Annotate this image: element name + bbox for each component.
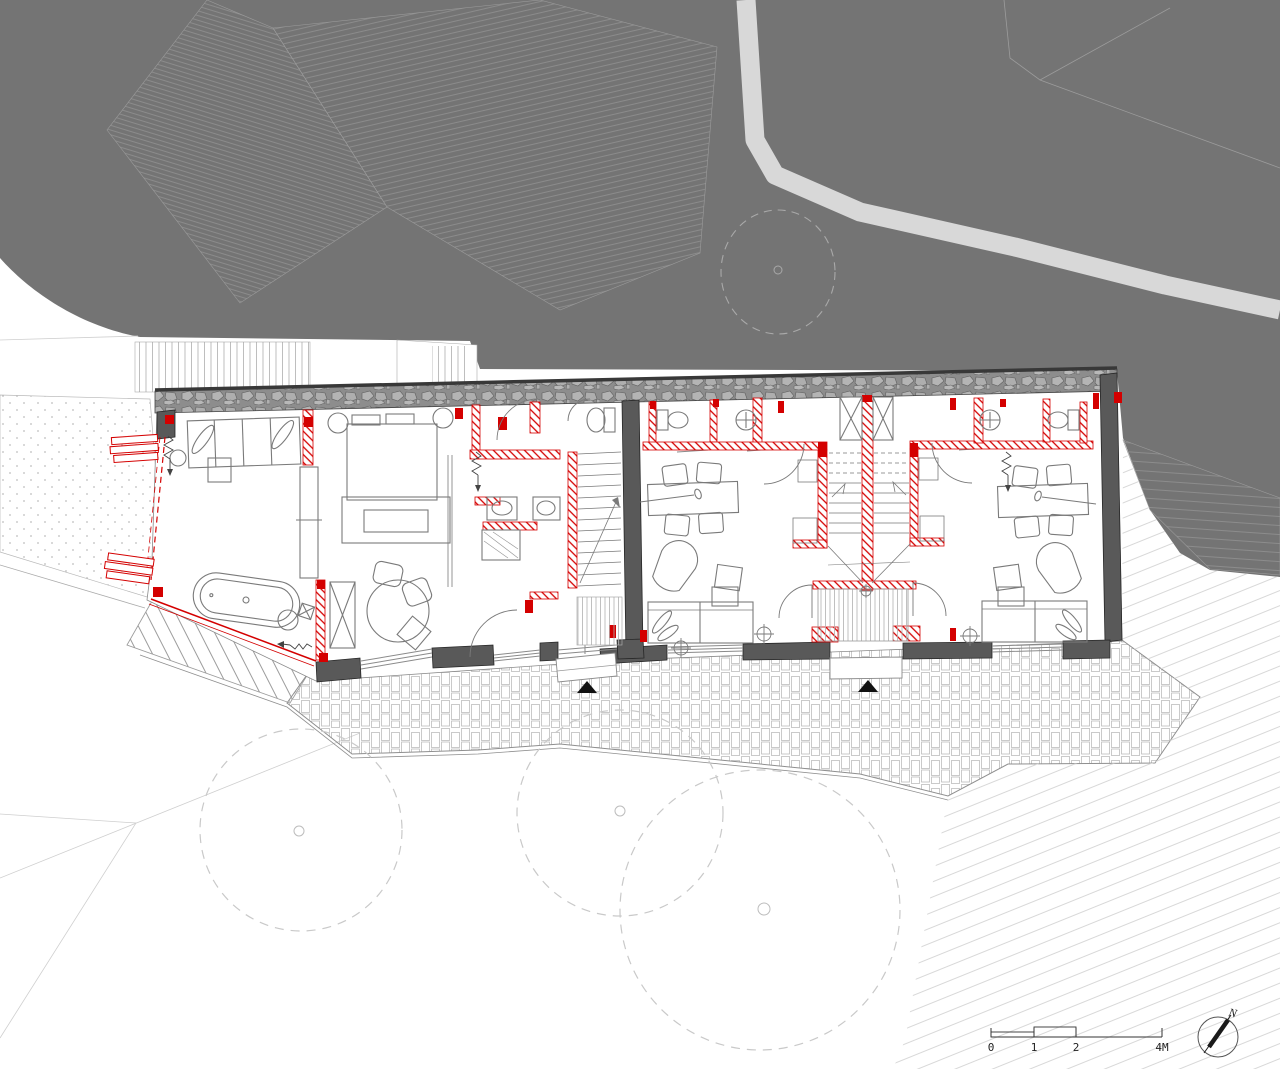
red-wall [643, 442, 827, 450]
floor-plan-drawing: 0 1 2 4M N [0, 0, 1280, 1069]
red-wall [568, 452, 577, 588]
sink-a [736, 410, 756, 430]
red-wall [1080, 402, 1087, 443]
building [103, 368, 1122, 693]
wall-left-return [157, 410, 175, 439]
wall-dividing [622, 400, 643, 652]
red-wall [470, 450, 560, 459]
wall-bottom-pier [540, 642, 558, 661]
red-wall [793, 540, 827, 548]
scale-label-1: 1 [1031, 1041, 1038, 1054]
red-wall [530, 592, 558, 599]
red-wall [483, 522, 537, 530]
red-wall [316, 580, 325, 660]
tree [620, 770, 900, 1050]
red-wall [472, 405, 480, 457]
field-boundary-line [0, 814, 136, 1038]
scale-label-0: 0 [988, 1041, 995, 1054]
field-boundary-line [0, 733, 360, 878]
site-line [0, 336, 138, 340]
wall-bottom-seg [903, 642, 992, 659]
red-wall [862, 397, 873, 590]
red-wall [530, 402, 540, 433]
red-wall [910, 538, 944, 546]
red-wall [818, 450, 827, 548]
doormat-left [577, 597, 622, 645]
tree [200, 729, 402, 931]
entrance-step-center [830, 657, 902, 679]
red-wall [813, 581, 916, 589]
red-wall [910, 449, 918, 546]
red-wall [1043, 399, 1050, 442]
wall-bottom-seg [432, 645, 494, 668]
scale-label-2: 2 [1073, 1041, 1080, 1054]
sink-b [980, 410, 1000, 430]
red-planks-upper [109, 434, 159, 462]
scale-label-4m: 4M [1155, 1041, 1169, 1054]
red-wall [910, 441, 1093, 449]
wall-bottom-seg [743, 642, 830, 660]
floor-plan-page: 0 1 2 4M N [0, 0, 1280, 1069]
wall-bottom-seg [1063, 640, 1110, 659]
vestibule-mat [818, 589, 908, 641]
